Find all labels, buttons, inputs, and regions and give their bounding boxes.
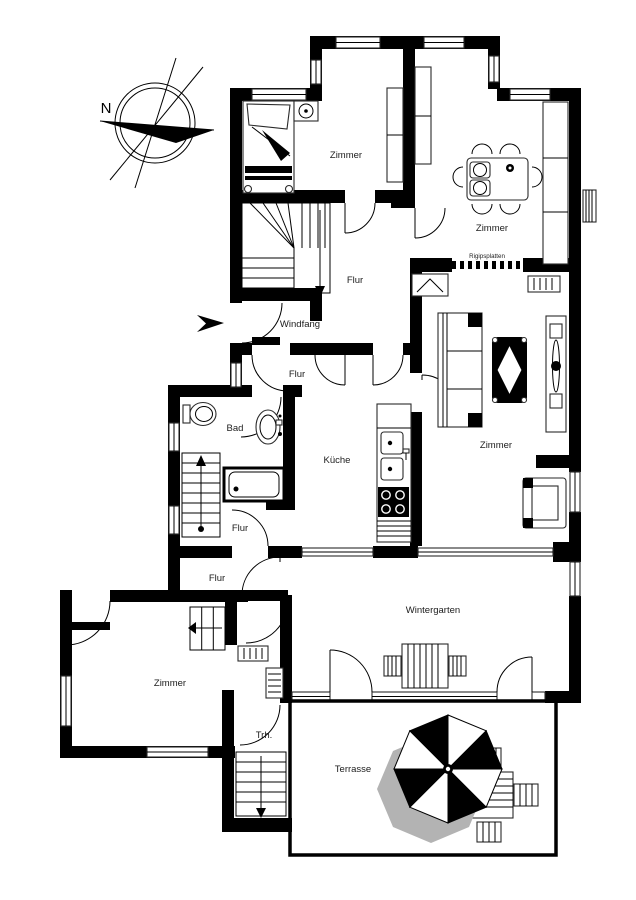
room-label-bedroom-bottom: Zimmer xyxy=(154,678,186,689)
wall-stub xyxy=(536,455,581,468)
window xyxy=(61,676,71,726)
exterior-shaft xyxy=(583,190,596,222)
garden-chair xyxy=(514,784,538,806)
room-label-hall-lower: Flur xyxy=(209,573,225,584)
wardrobe-right xyxy=(415,67,431,164)
room-label-kitchen: Küche xyxy=(324,455,351,466)
stairs-basement xyxy=(182,453,220,537)
window xyxy=(489,56,499,82)
garden-chair xyxy=(477,822,501,842)
kitchen-counter xyxy=(377,404,411,542)
entrance-arrow xyxy=(197,315,224,332)
drywall-note: Rigipsplatten xyxy=(469,253,505,260)
wintergarden-table xyxy=(384,644,466,688)
room-label-vestibule: Windfang xyxy=(280,319,320,330)
fan-unit xyxy=(294,101,318,121)
stairs-up-arrow xyxy=(196,455,206,466)
walls xyxy=(60,36,581,832)
window xyxy=(169,506,179,534)
door-arc-terrace-right xyxy=(497,657,532,692)
bed xyxy=(243,101,294,193)
bathtub xyxy=(224,468,284,501)
stove xyxy=(378,487,409,517)
toilet xyxy=(183,403,216,426)
wardrobe-left xyxy=(387,88,403,182)
room-label-terrace: Terrasse xyxy=(335,764,371,775)
window xyxy=(311,60,321,84)
compass-needle xyxy=(100,121,214,143)
room-label-hall-inner: Flur xyxy=(289,369,305,380)
door-arc-terrace-left xyxy=(330,650,372,692)
door-arc-dining xyxy=(415,208,445,238)
stairs-main xyxy=(242,203,330,297)
door-arc-bedroom xyxy=(345,203,375,233)
sink xyxy=(256,410,282,444)
window xyxy=(169,423,179,451)
room-label-bathroom: Bad xyxy=(227,423,244,434)
door-arc-wintergarden-hall xyxy=(242,557,280,595)
room-label-dining: Zimmer xyxy=(476,223,508,234)
window xyxy=(147,747,208,757)
sofa xyxy=(438,313,482,427)
door-arc-kitchen-2 xyxy=(315,355,345,385)
stairs-left-arrow xyxy=(188,622,196,634)
window xyxy=(570,562,580,596)
radiator xyxy=(238,646,268,661)
floor-plan: N xyxy=(0,0,636,900)
room-label-bedroom-top: Zimmer xyxy=(330,150,362,161)
window xyxy=(510,89,550,100)
window xyxy=(336,37,380,48)
room-label-hall-middle: Flur xyxy=(232,523,248,534)
shelf-unit-dining xyxy=(543,102,568,264)
coffee-table xyxy=(492,337,527,403)
room-label-living: Zimmer xyxy=(480,440,512,451)
armchair xyxy=(523,478,566,528)
window xyxy=(424,37,464,48)
glass-wall xyxy=(302,548,373,556)
window xyxy=(231,363,241,387)
room-label-wintergarden: Wintergarten xyxy=(406,605,460,616)
dining-set xyxy=(453,144,542,214)
room-label-hall-upper: Flur xyxy=(347,275,363,286)
window xyxy=(570,472,580,512)
radiator xyxy=(528,276,560,292)
glass-wall xyxy=(418,548,553,556)
door-arc-kitchen-1 xyxy=(373,355,403,385)
terrace-furniture xyxy=(377,715,538,843)
room-label-stairwell: Trh. xyxy=(256,730,273,741)
radiator xyxy=(266,668,283,698)
door-arc-vestibule xyxy=(252,355,288,391)
fireplace xyxy=(412,274,448,296)
compass-rose: N xyxy=(100,58,214,188)
stairs-small xyxy=(188,607,225,650)
floor-plan-drawing: N xyxy=(0,0,636,900)
compass-north-label: N xyxy=(101,100,112,117)
sideboard-living xyxy=(546,316,566,432)
stairs-stairwell xyxy=(236,752,286,818)
window xyxy=(252,89,306,100)
